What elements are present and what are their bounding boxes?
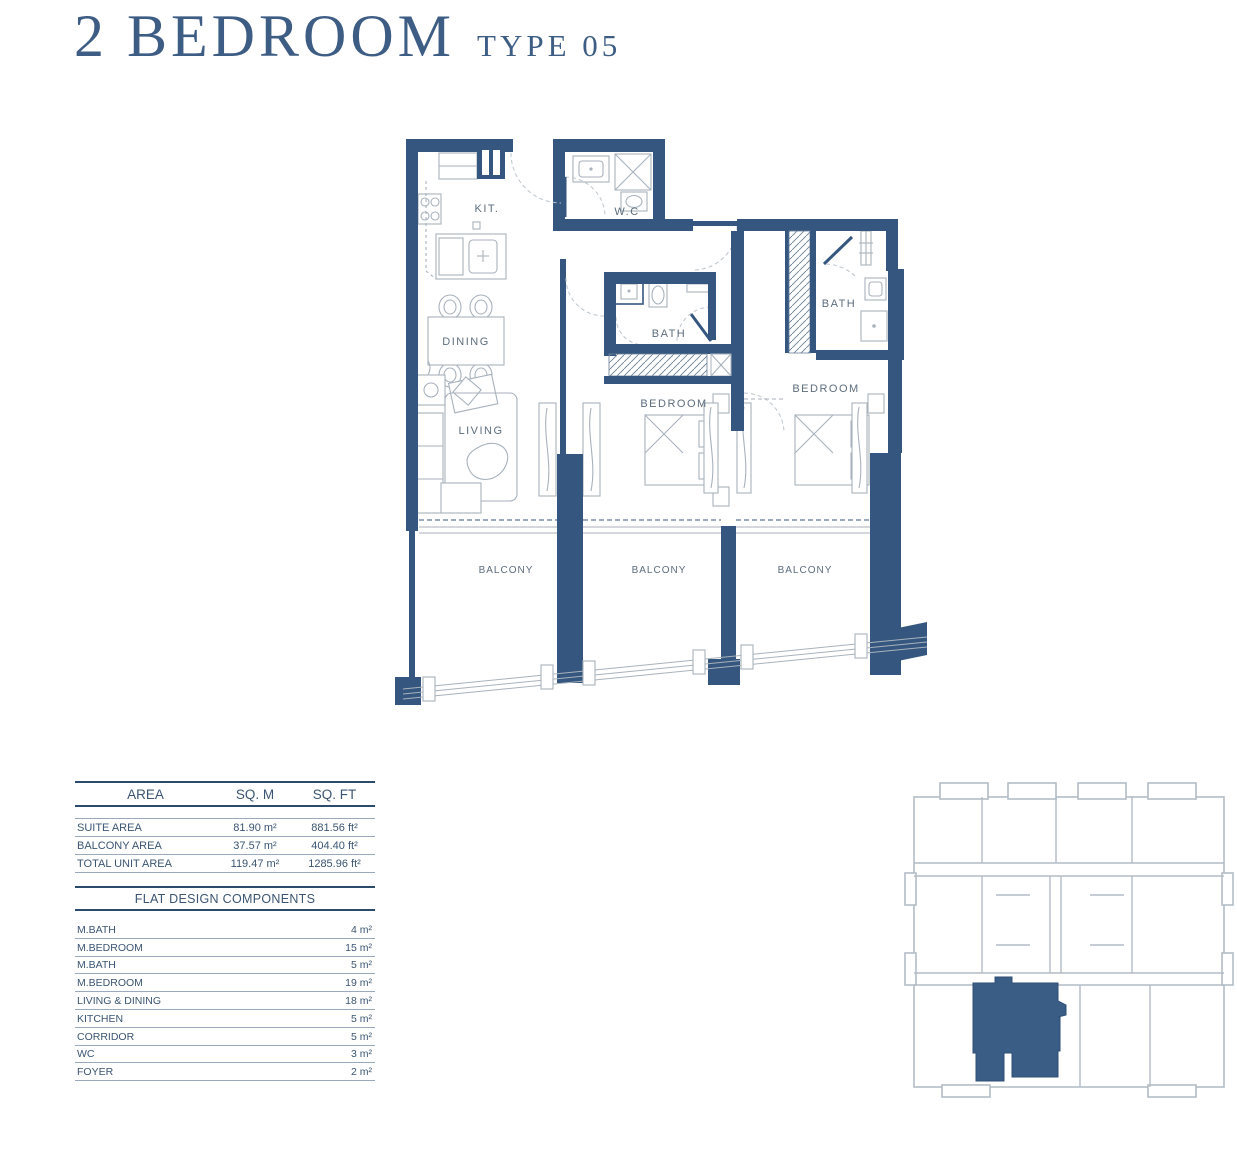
room-label-dining: DINING [442,336,490,348]
component-value: 3 m² [351,1048,372,1060]
component-value: 5 m² [351,959,372,971]
table-row: BALCONY AREA 37.57 m² 404.40 ft² [75,837,375,855]
balcony-railing [403,634,927,701]
table-row: M.BEDROOM 19 m² [75,974,375,992]
room-label-balcony-right: BALCONY [778,565,833,576]
component-label: FOYER [77,1066,113,1078]
table-row: WC 3 m² [75,1046,375,1064]
area-header-col2: SQ. M [216,787,294,802]
component-label: WC [77,1048,95,1060]
area-header-col1: AREA [75,787,216,802]
component-label: M.BATH [77,959,116,971]
component-value: 19 m² [345,977,372,989]
component-label: M.BEDROOM [77,977,143,989]
area-row-sqm: 119.47 m² [216,858,294,870]
component-label: M.BATH [77,924,116,936]
table-row: CORRIDOR 5 m² [75,1028,375,1046]
table-row: KITCHEN 5 m² [75,1010,375,1028]
key-plan-unit-highlight [973,977,1066,1081]
table-row: LIVING & DINING 18 m² [75,992,375,1010]
brochure-page: { "title": { "main": "2 BEDROOM", "type_… [0,0,1237,1149]
component-value: 5 m² [351,1013,372,1025]
table-row: FOYER 2 m² [75,1063,375,1081]
page-title: 2 BEDROOM TYPE 05 [74,0,621,72]
room-label-kitchen: KIT. [475,203,500,215]
table-row: SUITE AREA 81.90 m² 881.56 ft² [75,819,375,837]
room-label-balcony-left: BALCONY [479,565,534,576]
room-label-bath-right: BATH [822,298,857,310]
component-value: 5 m² [351,1031,372,1043]
area-row-sqft: 1285.96 ft² [294,858,375,870]
key-plan-outline [905,783,1233,1097]
area-table-body: SUITE AREA 81.90 m² 881.56 ft² BALCONY A… [75,818,375,873]
area-row-sqm: 37.57 m² [216,840,294,852]
table-row: M.BATH 4 m² [75,921,375,939]
unit-type-title: 2 BEDROOM [74,0,455,72]
table-row: TOTAL UNIT AREA 119.47 m² 1285.96 ft² [75,855,375,873]
tables-panel: AREA SQ. M SQ. FT SUITE AREA 81.90 m² 88… [75,781,375,1081]
key-plan [900,755,1237,1105]
room-label-bedroom-middle: BEDROOM [640,398,707,410]
area-row-sqm: 81.90 m² [216,822,294,834]
component-label: KITCHEN [77,1013,123,1025]
component-value: 15 m² [345,942,372,954]
room-label-balcony-middle: BALCONY [632,565,687,576]
component-value: 4 m² [351,924,372,936]
unit-type-variant: TYPE 05 [477,28,621,64]
floor-plan: KIT. W.C DINING LIVING BATH BATH BEDROOM… [393,131,945,735]
area-row-label: BALCONY AREA [75,840,216,852]
area-row-sqft: 404.40 ft² [294,840,375,852]
components-table-body: M.BATH 4 m² M.BEDROOM 15 m² M.BATH 5 m² … [75,921,375,1081]
area-table-header: AREA SQ. M SQ. FT [75,781,375,807]
room-label-bath-middle: BATH [652,328,687,340]
area-row-sqft: 881.56 ft² [294,822,375,834]
component-label: M.BEDROOM [77,942,143,954]
table-row: M.BEDROOM 15 m² [75,939,375,957]
component-label: CORRIDOR [77,1031,134,1043]
area-header-col3: SQ. FT [294,787,375,802]
table-row: M.BATH 5 m² [75,957,375,975]
area-row-label: SUITE AREA [75,822,216,834]
living-dining-fixtures [413,295,517,513]
room-label-living: LIVING [458,425,503,437]
room-label-wc: W.C [614,206,639,218]
component-label: LIVING & DINING [77,995,161,1007]
balcony-sills [419,520,870,533]
right-bath-fixtures [824,231,887,341]
room-label-bedroom-right: BEDROOM [792,383,859,395]
component-value: 18 m² [345,995,372,1007]
area-row-label: TOTAL UNIT AREA [75,858,216,870]
components-table-title: FLAT DESIGN COMPONENTS [75,886,375,911]
component-value: 2 m² [351,1066,372,1078]
